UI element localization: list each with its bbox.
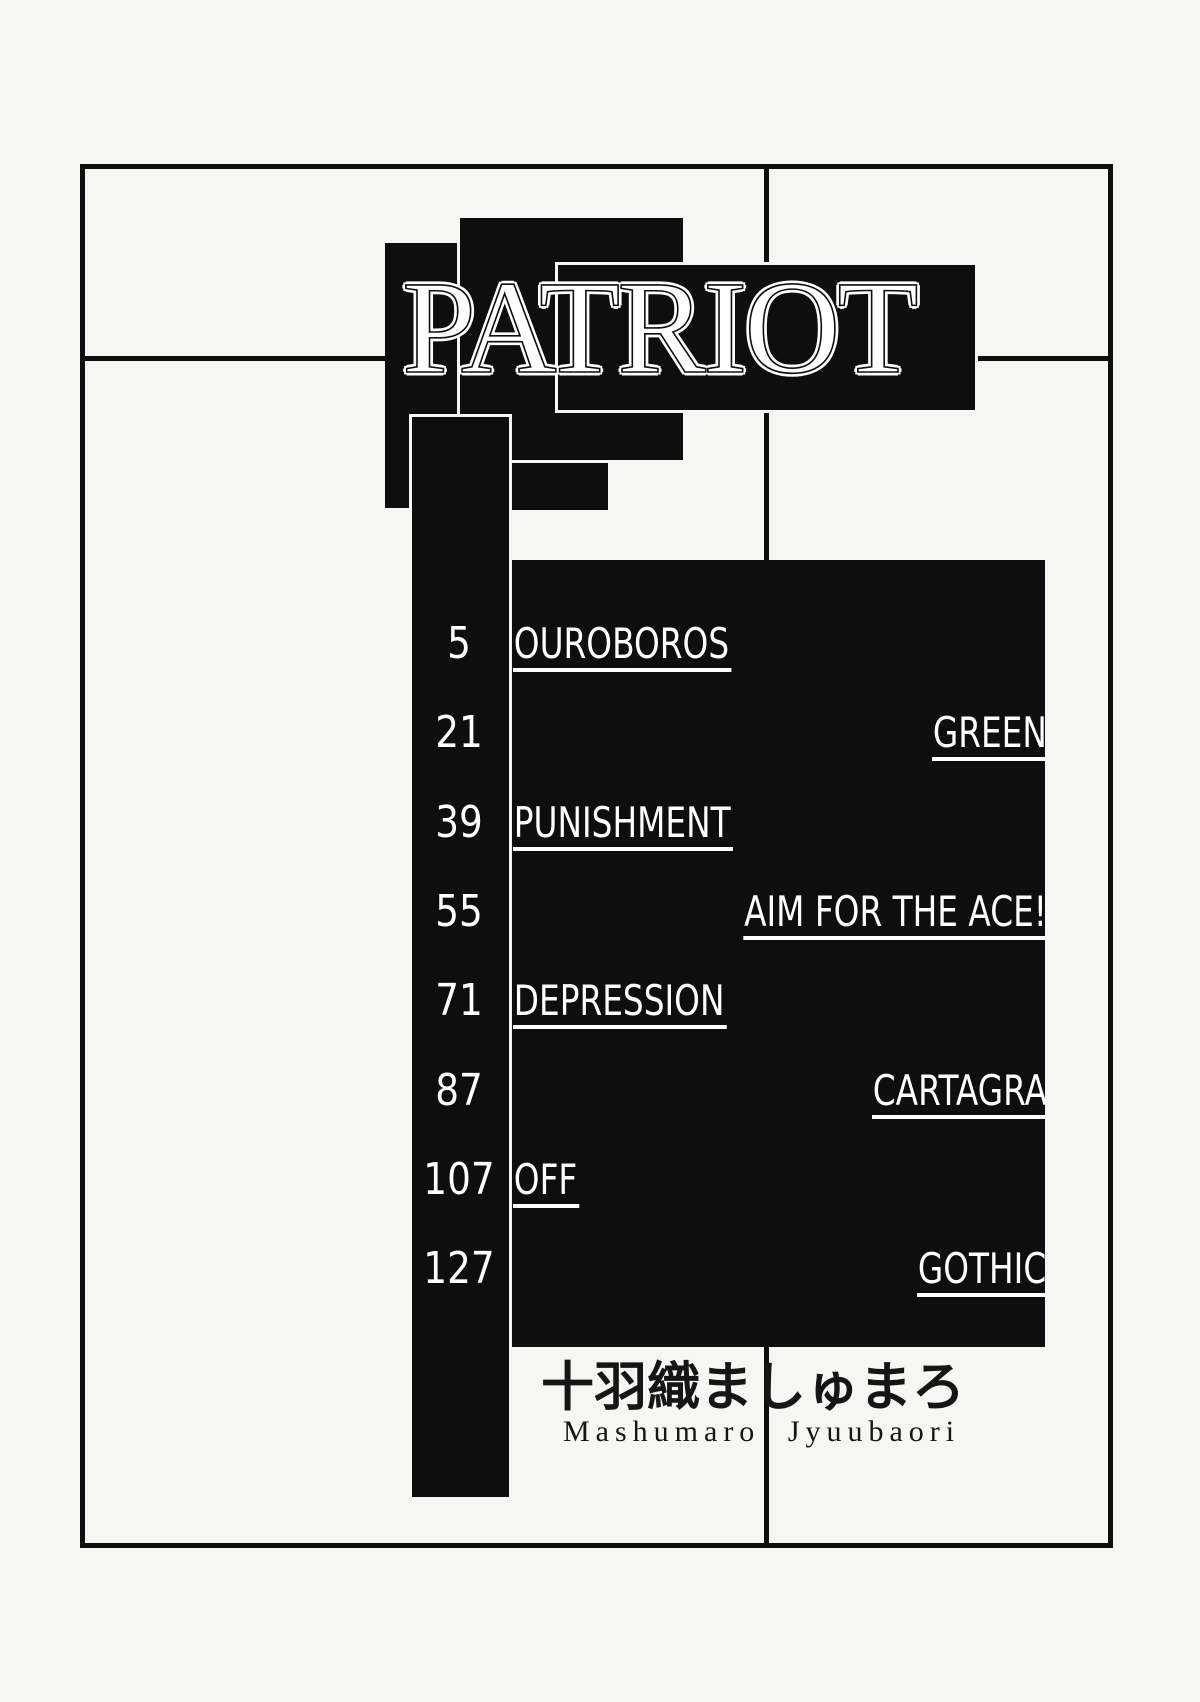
toc-chapter-title: GREEN xyxy=(932,712,1045,761)
toc-page-number-text: 107 xyxy=(423,1158,494,1202)
toc-row: PUNISHMENT xyxy=(513,802,795,860)
toc-chapter-title: CARTAGRA xyxy=(872,1070,1045,1119)
chapter-list-panel: OUROBOROSGREENPUNISHMENTAIM FOR THE ACE!… xyxy=(511,560,1045,1347)
toc-page-number-text: 71 xyxy=(435,979,483,1023)
toc-row: GOTHIC xyxy=(880,1248,1045,1306)
author-last-name: Jyuubaori xyxy=(788,1415,960,1448)
author-name-japanese: 十羽織ましゅまろ xyxy=(541,1356,965,1418)
toc-page-number-text: 87 xyxy=(435,1069,483,1113)
toc-page-number-text: 55 xyxy=(435,890,483,934)
toc-page-number: 71 xyxy=(412,979,506,1023)
toc-page-number: 107 xyxy=(412,1158,506,1202)
toc-row: OFF xyxy=(513,1159,598,1217)
toc-chapter-title: OUROBOROS xyxy=(513,623,731,672)
author-first-name: Mashumaro xyxy=(563,1415,760,1448)
toc-page-number-text: 39 xyxy=(435,801,483,845)
toc-page-number: 87 xyxy=(412,1069,506,1113)
toc-chapter-title: AIM FOR THE ACE! xyxy=(743,891,1045,940)
toc-chapter-title: GOTHIC xyxy=(918,1248,1045,1297)
toc-page-number-text: 5 xyxy=(447,622,471,666)
toc-page-number: 127 xyxy=(412,1247,506,1291)
masthead-block-small xyxy=(511,463,608,510)
toc-page-number: 39 xyxy=(412,801,506,845)
toc-row: OUROBOROS xyxy=(513,623,793,681)
toc-page-number-text: 127 xyxy=(423,1247,494,1291)
toc-page-number: 55 xyxy=(412,890,506,934)
toc-page-number: 21 xyxy=(412,711,506,755)
toc-chapter-title: OFF xyxy=(513,1159,580,1208)
toc-chapter-title: DEPRESSION xyxy=(513,980,727,1029)
toc-row: GREEN xyxy=(899,712,1045,770)
book-title: PATRIOT xyxy=(402,261,916,394)
manga-toc-page: OUROBOROSGREENPUNISHMENTAIM FOR THE ACE!… xyxy=(0,0,1200,1702)
toc-row: AIM FOR THE ACE! xyxy=(657,891,1045,949)
toc-page-number-text: 21 xyxy=(435,711,483,755)
toc-page-number: 5 xyxy=(412,622,506,666)
toc-row: DEPRESSION xyxy=(513,980,787,1038)
author-name-romaji: Mashumaro Jyuubaori xyxy=(563,1415,960,1449)
page-number-column xyxy=(412,417,509,1497)
toc-chapter-title: PUNISHMENT xyxy=(513,802,733,851)
toc-row: CARTAGRA xyxy=(822,1070,1045,1128)
